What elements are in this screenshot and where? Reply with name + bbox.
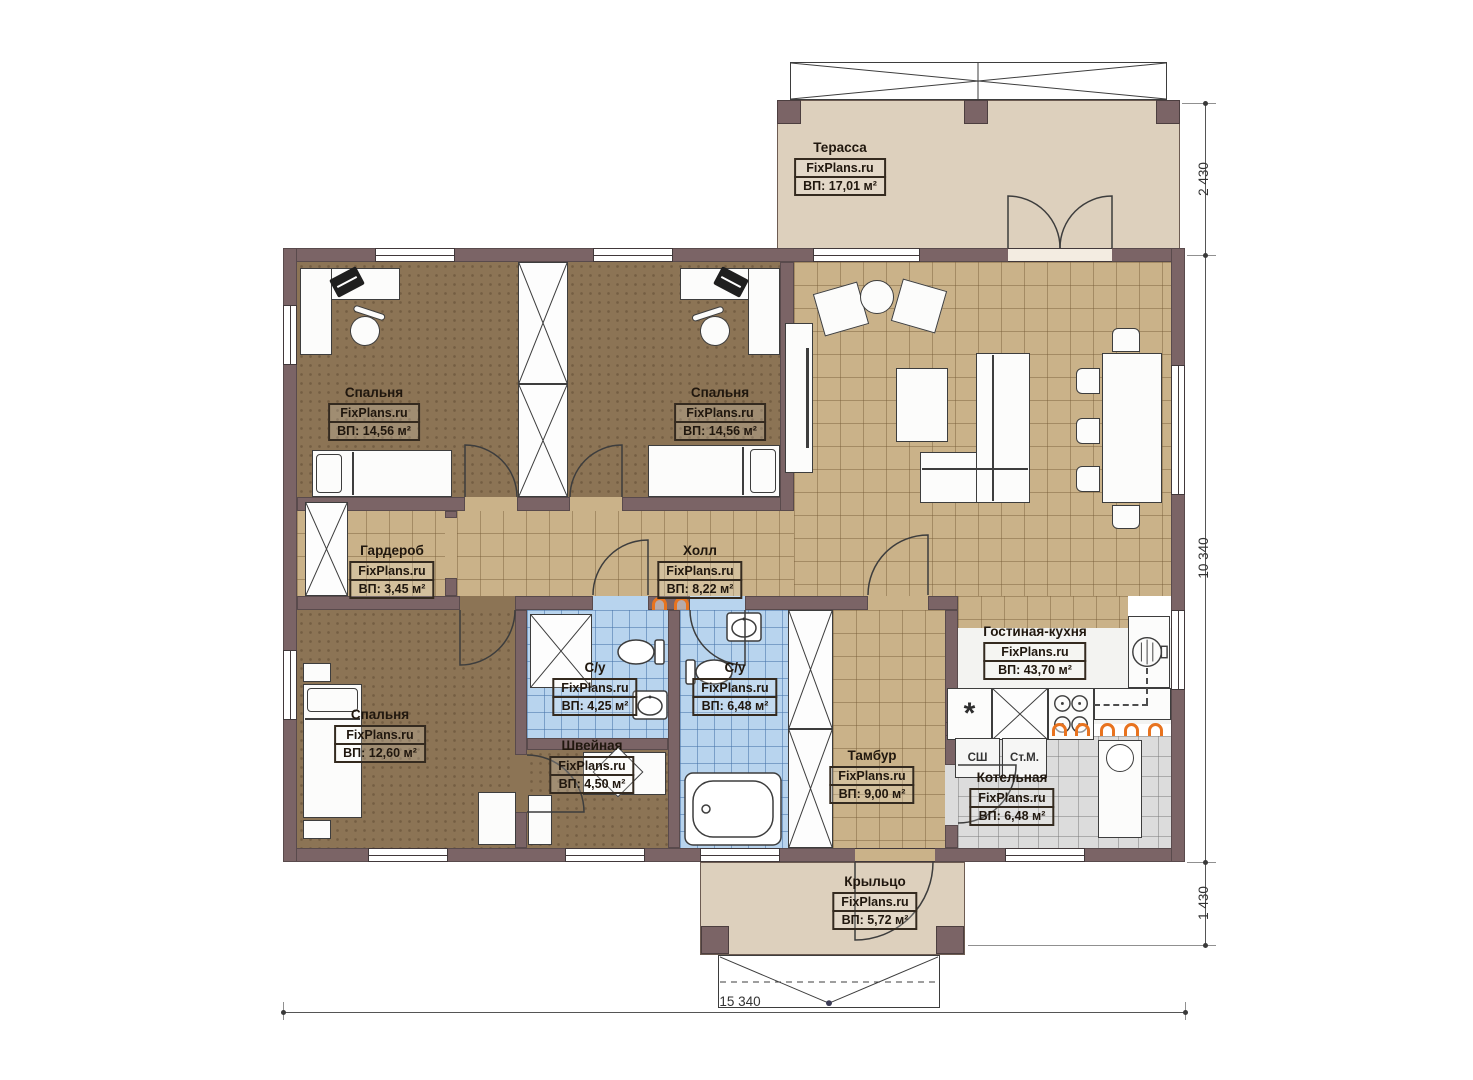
- wall-right: [1171, 248, 1185, 862]
- room-label-terrace: Терасса FixPlans.ru ВП: 17,01 м²: [794, 140, 886, 196]
- brand-tag: FixPlans.ru: [794, 158, 886, 178]
- room-name: Тамбур: [829, 748, 914, 763]
- nightstand: [303, 820, 331, 839]
- room-name: Терасса: [794, 140, 886, 155]
- room-label-living-kitchen: Гостиная-кухня FixPlans.ru ВП: 43,70 м²: [983, 624, 1086, 680]
- door-arc: [690, 610, 745, 665]
- sofa-section: [976, 353, 1030, 503]
- terrace-post: [1156, 100, 1180, 124]
- wall-wardrobe-east: [445, 578, 457, 596]
- dimension-porch-depth: 1 430: [1196, 868, 1214, 938]
- door-opening: [868, 596, 928, 610]
- radiator: [1052, 723, 1067, 736]
- door-opening: [465, 497, 517, 511]
- room-area: ВП: 14,56 м²: [328, 421, 420, 441]
- room-area: ВП: 17,01 м²: [794, 176, 886, 196]
- room-name: Холл: [657, 543, 742, 558]
- room-area: ВП: 43,70 м²: [983, 660, 1086, 680]
- window: [368, 848, 448, 862]
- brand-tag: FixPlans.ru: [328, 403, 420, 423]
- closet: [788, 729, 833, 848]
- wall-tambour-east: [945, 825, 958, 848]
- radiator: [1075, 723, 1090, 736]
- brand-tag: FixPlans.ru: [349, 561, 434, 581]
- room-area: ВП: 3,45 м²: [349, 579, 434, 599]
- dimension-marker: [1203, 253, 1208, 258]
- room-name: Швейная: [549, 738, 634, 753]
- extension-line: [1187, 862, 1216, 863]
- door-arc: [460, 610, 515, 665]
- dimension-marker: [281, 1010, 286, 1015]
- window: [593, 248, 673, 262]
- terrace-post: [777, 100, 801, 124]
- extension-line: [968, 945, 1216, 946]
- room-label-bedroom-1: Спальня FixPlans.ru ВП: 14,56 м²: [328, 385, 420, 441]
- dimension-marker: [1203, 943, 1208, 948]
- bed-seam: [352, 452, 354, 495]
- dimension-terrace-depth: 2 430: [1196, 144, 1214, 214]
- brand-tag: FixPlans.ru: [983, 642, 1086, 662]
- upper-cabinet-dashed: [1146, 668, 1148, 704]
- brand-tag: FixPlans.ru: [829, 766, 914, 786]
- window: [813, 248, 920, 262]
- wall-bedroom3-east: [515, 610, 527, 755]
- room-name: С/у: [552, 660, 637, 675]
- room-label-bedroom-3: Спальня FixPlans.ru ВП: 12,60 м²: [334, 707, 426, 763]
- dining-chair: [1076, 368, 1100, 394]
- dimension-line-bottom: [283, 1012, 1185, 1013]
- dresser: [478, 792, 516, 845]
- room-name: Спальня: [328, 385, 420, 400]
- kitchen-cabinet: [992, 688, 1048, 740]
- coffee-table: [896, 368, 948, 442]
- porch-post: [701, 926, 729, 954]
- room-area: ВП: 12,60 м²: [334, 743, 426, 763]
- wall-bedrooms-south: [622, 497, 794, 511]
- bed-seam: [742, 447, 744, 495]
- radiator: [1148, 723, 1163, 736]
- window: [283, 305, 297, 365]
- wall-bedrooms-south: [517, 497, 570, 511]
- brand-tag: FixPlans.ru: [692, 678, 777, 698]
- porch-post: [936, 926, 964, 954]
- dining-table: [1102, 353, 1162, 503]
- door-arc: [593, 540, 648, 595]
- extension-line: [1182, 103, 1216, 104]
- wall-hall-south: [745, 596, 868, 610]
- radiator: [1124, 723, 1139, 736]
- room-name: Крыльцо: [832, 874, 917, 889]
- terrace-door-opening: [1008, 248, 1112, 262]
- floor-plan: * СШ Ст.М. Терасса FixPlans.ru ВП:: [0, 0, 1473, 1080]
- brand-tag: FixPlans.ru: [657, 561, 742, 581]
- room-name: Спальня: [334, 707, 426, 722]
- extension-line: [1187, 255, 1216, 256]
- terrace-stairs: [790, 62, 1167, 100]
- room-area: ВП: 4,50 м²: [549, 774, 634, 794]
- wall-wardrobe-east: [445, 511, 457, 518]
- dimension-total-width: 15 340: [695, 994, 785, 1009]
- closet: [518, 262, 568, 384]
- room-floor-tambour: [833, 610, 945, 848]
- brand-tag: FixPlans.ru: [334, 725, 426, 745]
- dining-chair: [1112, 328, 1140, 352]
- room-name: Котельная: [969, 770, 1054, 785]
- fridge: *: [947, 688, 992, 740]
- room-label-wardrobe: Гардероб FixPlans.ru ВП: 3,45 м²: [349, 543, 434, 599]
- closet: [305, 502, 348, 596]
- window: [565, 848, 645, 862]
- door-arc: [868, 535, 928, 595]
- room-area: ВП: 4,25 м²: [552, 696, 637, 716]
- bathtub: [684, 772, 782, 846]
- door-arc-terrace: [1060, 196, 1112, 248]
- window: [1005, 848, 1085, 862]
- room-label-boiler: Котельная FixPlans.ru ВП: 6,48 м²: [969, 770, 1054, 826]
- brand-tag: FixPlans.ru: [969, 788, 1054, 808]
- window: [1171, 365, 1185, 495]
- room-name: Спальня: [674, 385, 766, 400]
- room-label-bath-2: С/у FixPlans.ru ВП: 6,48 м²: [692, 660, 777, 716]
- room-area: ВП: 6,48 м²: [692, 696, 777, 716]
- room-area: ВП: 8,22 м²: [657, 579, 742, 599]
- room-area: ВП: 14,56 м²: [674, 421, 766, 441]
- room-name: Гостиная-кухня: [983, 624, 1086, 639]
- pillow: [750, 449, 776, 493]
- pillow: [316, 454, 342, 493]
- wall-bedroom3-east: [515, 812, 527, 848]
- door-opening: [570, 497, 622, 511]
- room-area: ВП: 5,72 м²: [832, 910, 917, 930]
- brand-tag: FixPlans.ru: [832, 892, 917, 912]
- window: [283, 650, 297, 720]
- wall-hall-south: [928, 596, 958, 610]
- brand-tag: FixPlans.ru: [674, 403, 766, 423]
- dining-chair: [1112, 505, 1140, 529]
- radiator: [1100, 723, 1115, 736]
- door-opening: [460, 596, 515, 610]
- desk: [748, 268, 780, 355]
- side-table: [860, 280, 894, 314]
- kitchen-sink: [1128, 616, 1170, 688]
- room-name: С/у: [692, 660, 777, 675]
- room-label-tambour: Тамбур FixPlans.ru ВП: 9,00 м²: [829, 748, 914, 804]
- door-opening: [445, 518, 457, 578]
- door-arc: [570, 445, 622, 497]
- door-opening: [515, 755, 527, 812]
- room-area: ВП: 9,00 м²: [829, 784, 914, 804]
- dimension-marker: [1183, 1010, 1188, 1015]
- room-name: Гардероб: [349, 543, 434, 558]
- room-label-bedroom-2: Спальня FixPlans.ru ВП: 14,56 м²: [674, 385, 766, 441]
- window: [375, 248, 455, 262]
- dimension-marker: [1203, 101, 1208, 106]
- wall-hall-south: [515, 596, 593, 610]
- room-label-sewing: Швейная FixPlans.ru ВП: 4,50 м²: [549, 738, 634, 794]
- room-label-hall: Холл FixPlans.ru ВП: 8,22 м²: [657, 543, 742, 599]
- nightstand: [303, 663, 331, 682]
- dining-chair: [1076, 466, 1100, 492]
- tv: [806, 348, 809, 448]
- sofa-seam: [992, 355, 994, 501]
- dimension-house-depth: 10 340: [1196, 523, 1214, 593]
- upper-cabinet-dashed: [1094, 704, 1148, 706]
- terrace-post: [964, 100, 988, 124]
- closet: [518, 384, 568, 497]
- brand-tag: FixPlans.ru: [549, 756, 634, 776]
- sofa-seam: [922, 468, 1028, 470]
- window: [1171, 610, 1185, 690]
- closet: [788, 610, 833, 729]
- room-label-bath-1: С/у FixPlans.ru ВП: 4,25 м²: [552, 660, 637, 716]
- door-arc: [465, 445, 517, 497]
- door-arc-terrace: [1008, 196, 1060, 248]
- brand-tag: FixPlans.ru: [552, 678, 637, 698]
- door-opening: [593, 596, 648, 610]
- desk: [300, 268, 332, 355]
- room-area: ВП: 6,48 м²: [969, 806, 1054, 826]
- room-label-porch: Крыльцо FixPlans.ru ВП: 5,72 м²: [832, 874, 917, 930]
- entry-door-opening: [855, 848, 935, 862]
- boiler-top: [1106, 744, 1134, 772]
- wall-bath-divider: [668, 610, 680, 848]
- window: [700, 848, 780, 862]
- dimension-marker: [1203, 860, 1208, 865]
- dining-chair: [1076, 418, 1100, 444]
